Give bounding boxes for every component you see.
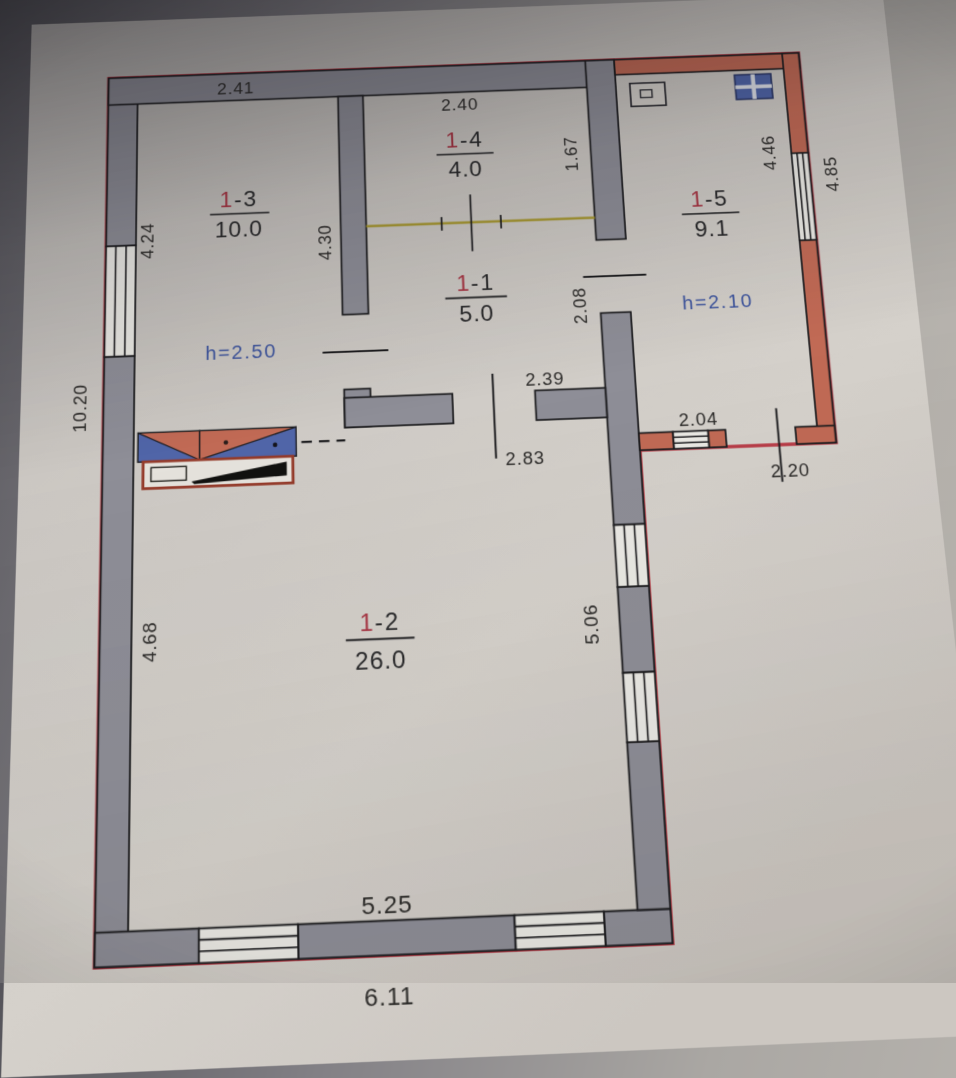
svg-text:1-4: 1-4	[445, 128, 484, 153]
dim-annex-bottom-outer: 2.20	[770, 459, 811, 481]
floor-plan-sheet: 2.41 2.40 4.24 4.30 1.67 2.08 2.39 2.83 …	[1, 0, 956, 1078]
dim-outer-left: 10.20	[69, 384, 91, 433]
dim-room12-bottom: 5.25	[361, 888, 413, 919]
wall-segment	[338, 96, 368, 315]
dim-room14-right: 1.67	[560, 136, 582, 172]
dim-room13-top: 2.41	[217, 78, 254, 98]
wall-segment	[618, 586, 655, 673]
room-height-note: h=2.10	[682, 292, 755, 315]
room-area: 4.0	[448, 157, 483, 182]
room-number-suffix: -3	[234, 187, 258, 212]
room-height-note: h=2.50	[205, 341, 277, 365]
stove-symbol	[138, 427, 297, 489]
room-area: 9.1	[694, 217, 730, 242]
svg-text:1-1: 1-1	[456, 270, 496, 296]
dim-room12-top: 2.83	[505, 447, 545, 469]
window-symbol	[614, 524, 649, 587]
room-number-prefix: 1	[690, 187, 706, 211]
room-area: 10.0	[215, 217, 263, 243]
stove-icon	[734, 74, 773, 100]
floor-plan-drawing: 2.41 2.40 4.24 4.30 1.67 2.08 2.39 2.83 …	[1, 0, 956, 1078]
dim-room12-left: 4.68	[138, 621, 160, 663]
dim-annex-right-outer: 4.85	[820, 156, 844, 192]
dim-annex-right-inner: 4.46	[758, 135, 781, 171]
room-area: 5.0	[459, 301, 495, 327]
room-number-prefix: 1	[445, 128, 460, 152]
room-number-suffix: -2	[374, 608, 400, 636]
wall-segment	[639, 432, 674, 450]
dim-outer-bottom: 6.11	[364, 980, 415, 1012]
dim-room11-right: 2.08	[569, 287, 592, 325]
room-number-suffix: -5	[704, 187, 730, 212]
room-area: 26.0	[355, 646, 407, 675]
dim-room11-bottom: 2.39	[525, 368, 565, 390]
wall-segment	[344, 394, 453, 428]
room-number-suffix: -1	[470, 270, 495, 295]
dim-annex-bottom-inner: 2.04	[678, 409, 719, 431]
dim-room12-right: 5.06	[580, 603, 604, 644]
dim-midwall-left: 4.30	[314, 224, 335, 261]
window-symbol	[623, 672, 659, 743]
svg-text:1-2: 1-2	[359, 608, 400, 637]
room-number-prefix: 1	[220, 188, 234, 212]
wall-segment	[708, 430, 727, 448]
window-symbol	[514, 912, 605, 950]
room-number-suffix: -4	[459, 128, 483, 152]
wall-segment	[604, 909, 673, 946]
wall-segment	[94, 929, 198, 968]
dim-room13-left: 4.24	[137, 223, 158, 260]
window-symbol	[673, 430, 709, 448]
window-symbol	[104, 245, 136, 357]
svg-text:1-5: 1-5	[690, 187, 730, 212]
room-number-prefix: 1	[359, 609, 375, 637]
sink-icon	[630, 82, 666, 106]
svg-text:1-3: 1-3	[220, 187, 258, 212]
wall-segment	[795, 426, 836, 445]
wall-segment	[535, 388, 607, 420]
window-symbol	[199, 924, 299, 963]
photo-background: 2.41 2.40 4.24 4.30 1.67 2.08 2.39 2.83 …	[0, 0, 956, 983]
room-number-prefix: 1	[456, 271, 472, 296]
dim-room14-top: 2.40	[441, 94, 479, 114]
stove-notch	[151, 466, 186, 481]
